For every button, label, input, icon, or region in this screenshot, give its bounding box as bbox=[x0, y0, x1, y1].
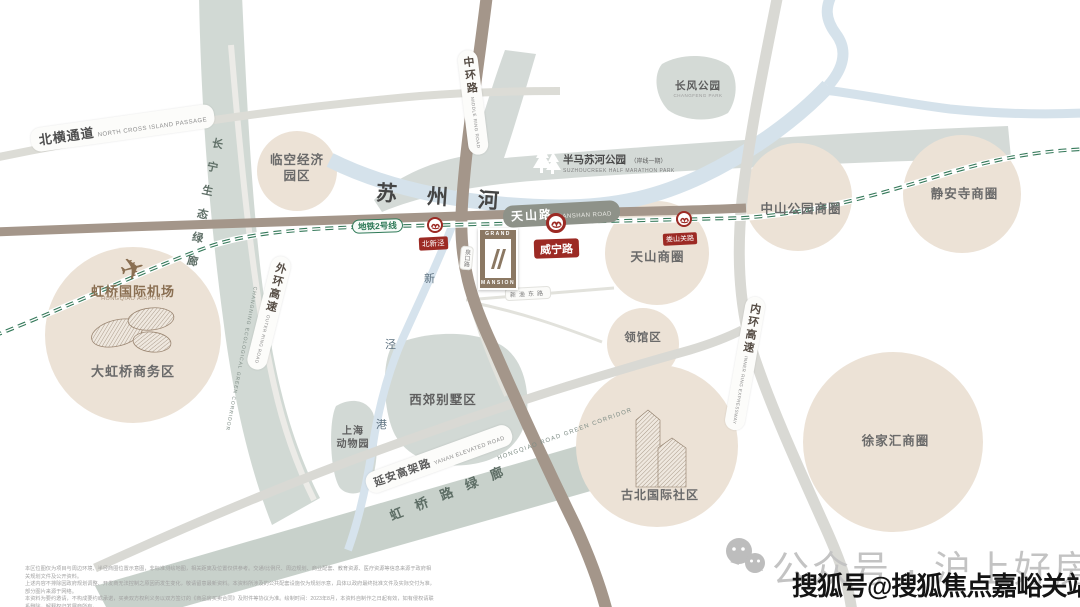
metro-station-icon-weininglu bbox=[546, 213, 566, 233]
xinjing-creek-char: 泾 bbox=[385, 336, 396, 352]
banma-park-label: 半马苏河公园 （岸线一期） SUZHOUCREEK HALF MARATHON … bbox=[563, 150, 675, 174]
zhongshan-biz-circle bbox=[744, 143, 852, 251]
park-label-en: SUZHOUCREEK HALF MARATHON PARK bbox=[563, 168, 675, 174]
road-label-en: NORTH CROSS ISLAND PASSAGE bbox=[97, 117, 207, 138]
suzhou-river-label: 苏州河 bbox=[375, 177, 530, 218]
disclaimer-line: 上述内容不排除因政府规划调整、开发商无法控制之原因而发生变化，敬请留意最新资料。… bbox=[25, 581, 435, 596]
road-label-en: INNER RING EXPRESSWAY bbox=[732, 356, 749, 425]
quankou-road-label: 泉口路 bbox=[459, 245, 474, 270]
jingan-biz-label: 静安寺商圈 bbox=[917, 183, 1012, 202]
metro-station-label-beixinjing: 北新泾 bbox=[419, 236, 448, 250]
metro-station-label-loushanguanlu: 娄山关路 bbox=[663, 232, 698, 246]
gubei-label: 古北国际社区 bbox=[615, 486, 705, 503]
suzhou-river-east-branch bbox=[824, 90, 1080, 114]
changning-corridor-label: 长宁生态绿廊 bbox=[180, 136, 226, 280]
xinjing-creek-char: 港 bbox=[376, 416, 387, 432]
road-label-en: OUTER RING ROAD bbox=[254, 314, 271, 364]
park-label-zh: 半马苏河公园 bbox=[563, 154, 626, 166]
area-label-line: 园区 bbox=[257, 168, 337, 184]
road-label-zh: 外环高速 bbox=[261, 261, 289, 315]
road-label-zh: 内环高速 bbox=[739, 302, 764, 356]
logo-monogram bbox=[485, 239, 511, 278]
zoo-label: 上海 动物园 bbox=[330, 425, 376, 451]
xinjing-creek-char: 新 bbox=[424, 270, 435, 286]
zhongshan-biz-label: 中山公园商圈 bbox=[756, 198, 846, 217]
park-label-zh: 长风公园 bbox=[660, 78, 736, 93]
suzhou-river-north-meander bbox=[827, 0, 843, 86]
disclaimer-line: 本资料为要约邀请，不构成要约或承诺，买卖双方权利义务以双方签订的《商品房买卖合同… bbox=[25, 596, 435, 607]
disclaimer-line: 本区位图仅为项目与周边环境、半径商圈位置示意图，非标准测绘地图，相关距离及位置仅… bbox=[25, 566, 435, 581]
logo-bottom-text: MANSION bbox=[481, 279, 515, 288]
area-label-line: 动物园 bbox=[330, 438, 376, 451]
changning-corridor-band bbox=[199, 0, 320, 525]
dahongqiao-label: 大虹桥商务区 bbox=[83, 361, 183, 380]
area-label-line: 临空经济 bbox=[257, 152, 337, 168]
north-cross-passage-label: 北横通道NORTH CROSS ISLAND PASSAGE bbox=[29, 103, 216, 153]
park-label-note: （岸线一期） bbox=[630, 159, 666, 165]
road-label-zh: 中环路 bbox=[459, 55, 480, 96]
xujiahui-biz-label: 徐家汇商圈 bbox=[853, 430, 938, 449]
inner-ring-label: 内环高速 INNER RING EXPRESSWAY bbox=[723, 295, 766, 432]
area-label-line: 上海 bbox=[330, 425, 376, 438]
linkong-label: 临空经济 园区 bbox=[257, 152, 337, 184]
road-label-en: MIDDLE RING ROAD bbox=[470, 97, 481, 149]
disclaimer-text: 本区位图仅为项目与周边环境、半径商圈位置示意图，非标准测绘地图，相关距离及位置仅… bbox=[25, 566, 435, 607]
metro-station-label-weininglu: 威宁路 bbox=[534, 238, 580, 259]
changfeng-park-label: 长风公园 CHANGFENG PARK bbox=[660, 78, 736, 98]
road-label-zh: 北横通道 bbox=[38, 125, 96, 148]
metro-line-2-label: 地铁2号线 bbox=[352, 218, 403, 234]
lingguan-label: 领馆区 bbox=[613, 329, 673, 345]
middle-ring-road bbox=[461, 0, 607, 607]
tianshan-biz-label: 天山商圈 bbox=[615, 246, 700, 265]
park-label-en: CHANGFENG PARK bbox=[660, 93, 736, 98]
metro-station-icon-beixinjing bbox=[427, 217, 443, 233]
pine-tree-icon bbox=[533, 146, 561, 174]
hongqiao-airport-label-en: HONGQIAO AIRPORT bbox=[83, 296, 183, 302]
road-label-zh: 延安高架路 bbox=[372, 457, 432, 489]
middle-ring-label: 中环路 MIDDLE RING ROAD bbox=[457, 49, 490, 155]
grand-mansion-logo: GRAND MANSION bbox=[478, 228, 518, 290]
grand-mansion-logo-inner: GRAND MANSION bbox=[480, 230, 516, 288]
wechat-icon bbox=[722, 536, 770, 584]
location-map: 北横通道NORTH CROSS ISLAND PASSAGE 中环路 MIDDL… bbox=[0, 0, 1080, 607]
xijiao-label: 西郊别墅区 bbox=[406, 389, 480, 408]
sohu-watermark-text: 搜狐号@搜狐焦点嘉峪关站 bbox=[792, 566, 1080, 603]
metro-station-icon-loushanguanlu bbox=[676, 211, 692, 227]
logo-top-text: GRAND bbox=[485, 230, 511, 239]
